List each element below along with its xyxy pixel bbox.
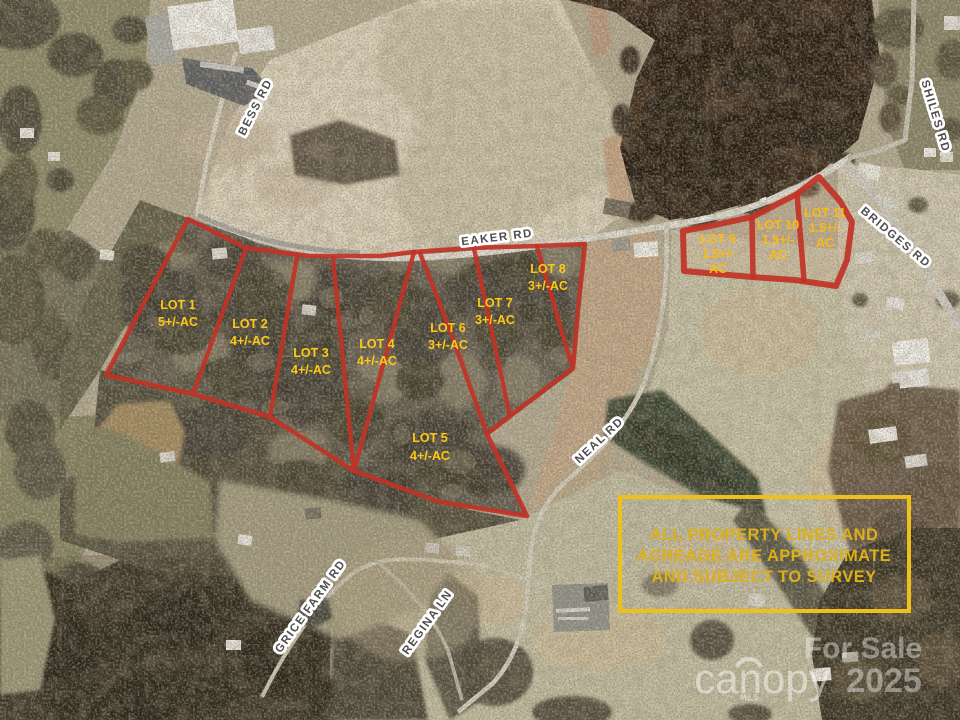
svg-text:AC: AC — [769, 248, 787, 262]
svg-text:1.5+/-: 1.5+/- — [702, 247, 734, 261]
svg-text:LOT 4: LOT 4 — [359, 337, 394, 351]
svg-text:LOT 9: LOT 9 — [700, 232, 735, 246]
svg-text:LOT 11: LOT 11 — [804, 206, 846, 220]
svg-text:3+/-AC: 3+/-AC — [475, 313, 515, 327]
svg-text:3+/-AC: 3+/-AC — [528, 279, 568, 293]
svg-text:LOT 7: LOT 7 — [477, 296, 512, 310]
svg-text:AC: AC — [709, 262, 727, 276]
svg-text:3+/-AC: 3+/-AC — [428, 338, 468, 352]
svg-text:LOT 1: LOT 1 — [160, 298, 195, 312]
svg-text:AC: AC — [816, 236, 834, 250]
svg-text:4+/-AC: 4+/-AC — [357, 354, 397, 368]
svg-text:LOT 3: LOT 3 — [293, 346, 328, 360]
svg-text:LOT 6: LOT 6 — [430, 321, 465, 335]
svg-text:4+/-AC: 4+/-AC — [410, 449, 450, 463]
svg-text:4+/-AC: 4+/-AC — [291, 363, 331, 377]
svg-text:canopy: canopy — [694, 655, 829, 702]
svg-text:1.5+/-: 1.5+/- — [809, 221, 841, 235]
svg-text:LOT 8: LOT 8 — [530, 262, 565, 276]
svg-text:ACREAGE ARE APPROXIMATE: ACREAGE ARE APPROXIMATE — [637, 547, 891, 565]
svg-text:1.5+/-: 1.5+/- — [762, 233, 794, 247]
svg-text:ALL PROPERTY LINES AND: ALL PROPERTY LINES AND — [650, 526, 879, 544]
svg-text:LOT 10: LOT 10 — [757, 218, 799, 232]
svg-text:2025: 2025 — [846, 662, 922, 700]
svg-text:LOT 5: LOT 5 — [412, 431, 447, 445]
svg-text:AND SUBJECT TO SURVEY: AND SUBJECT TO SURVEY — [651, 568, 876, 586]
svg-text:5+/-AC: 5+/-AC — [158, 315, 198, 329]
svg-text:MLS: MLS — [740, 693, 760, 702]
svg-text:LOT 2: LOT 2 — [232, 317, 267, 331]
svg-text:4+/-AC: 4+/-AC — [230, 334, 270, 348]
